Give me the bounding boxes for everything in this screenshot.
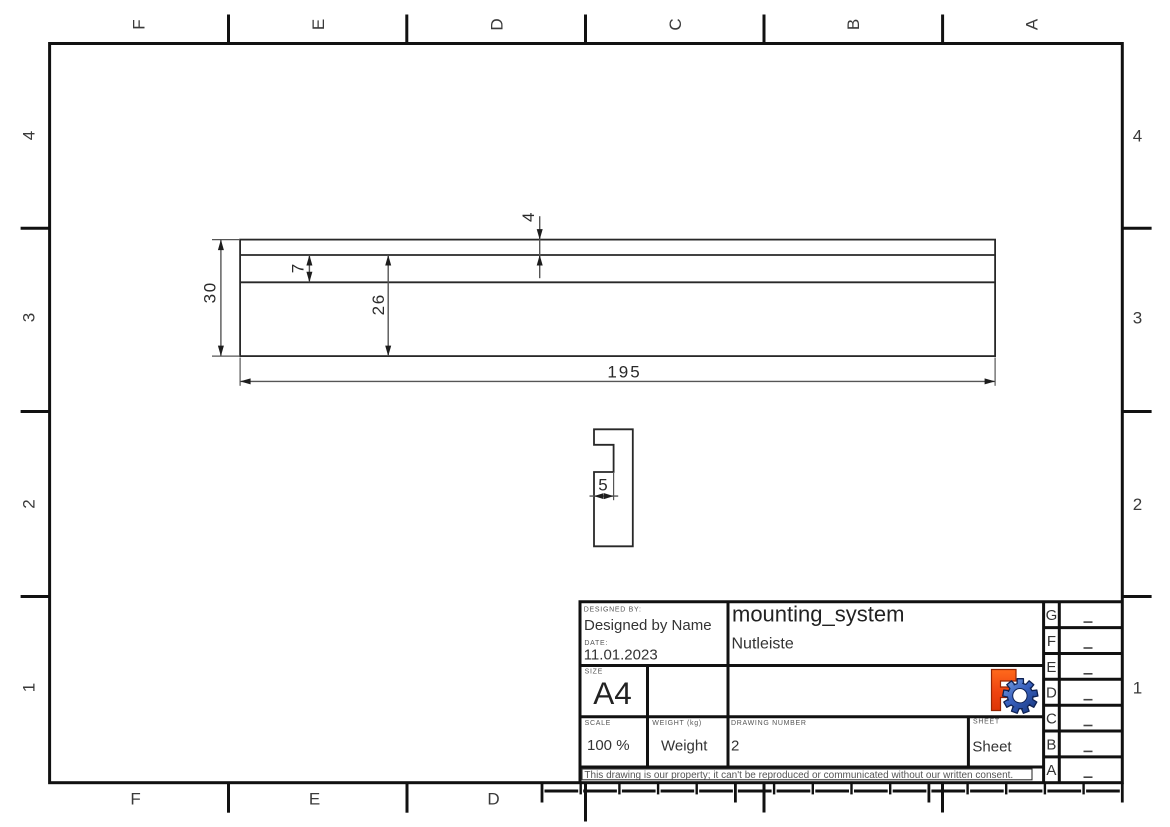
svg-text:D: D [487,18,506,30]
svg-text:DRAWING NUMBER: DRAWING NUMBER [731,720,807,727]
svg-text:2: 2 [20,499,39,508]
svg-text:195: 195 [607,363,641,382]
svg-text:A: A [1046,762,1056,779]
svg-text:4: 4 [1133,127,1142,146]
svg-text:E: E [309,790,320,809]
svg-text:1: 1 [20,683,39,692]
svg-text:F: F [130,19,149,29]
svg-text:1: 1 [1133,679,1142,698]
svg-text:A4: A4 [593,675,632,711]
svg-text:E: E [309,19,328,30]
svg-text:4: 4 [20,131,39,140]
svg-text:Designed by Name: Designed by Name [584,617,712,634]
svg-text:C: C [1046,711,1057,728]
svg-text:E: E [1046,659,1056,676]
svg-text:A: A [1023,18,1042,30]
svg-text:2: 2 [1133,495,1142,514]
svg-text:DESIGNED BY:: DESIGNED BY: [584,606,642,613]
svg-text:B: B [1046,736,1056,753]
svg-text:SHEET: SHEET [973,719,1000,726]
svg-text:100 %: 100 % [587,737,630,754]
svg-text:F: F [130,790,140,809]
svg-text:7: 7 [288,264,307,273]
svg-text:mounting_system: mounting_system [732,602,904,627]
svg-text:3: 3 [1133,309,1142,328]
svg-text:SCALE: SCALE [585,720,611,727]
svg-text:2: 2 [731,737,739,754]
svg-text:3: 3 [20,313,39,322]
svg-text:Weight: Weight [661,738,708,755]
svg-text:Sheet: Sheet [972,738,1012,755]
svg-text:D: D [1046,685,1057,702]
svg-text:WEIGHT (kg): WEIGHT (kg) [652,720,702,727]
svg-text:F: F [1047,633,1056,650]
svg-text:D: D [487,790,499,809]
svg-text:This drawing is our property;: This drawing is our property; it can't b… [584,770,1013,781]
svg-text:26: 26 [369,293,388,315]
svg-text:30: 30 [201,281,220,303]
svg-text:B: B [844,19,863,30]
svg-text:5: 5 [598,475,607,494]
svg-text:C: C [666,18,685,30]
svg-text:Nutleiste: Nutleiste [732,635,794,652]
svg-text:4: 4 [519,213,538,222]
svg-text:11.01.2023: 11.01.2023 [584,646,658,663]
svg-text:G: G [1046,607,1058,624]
